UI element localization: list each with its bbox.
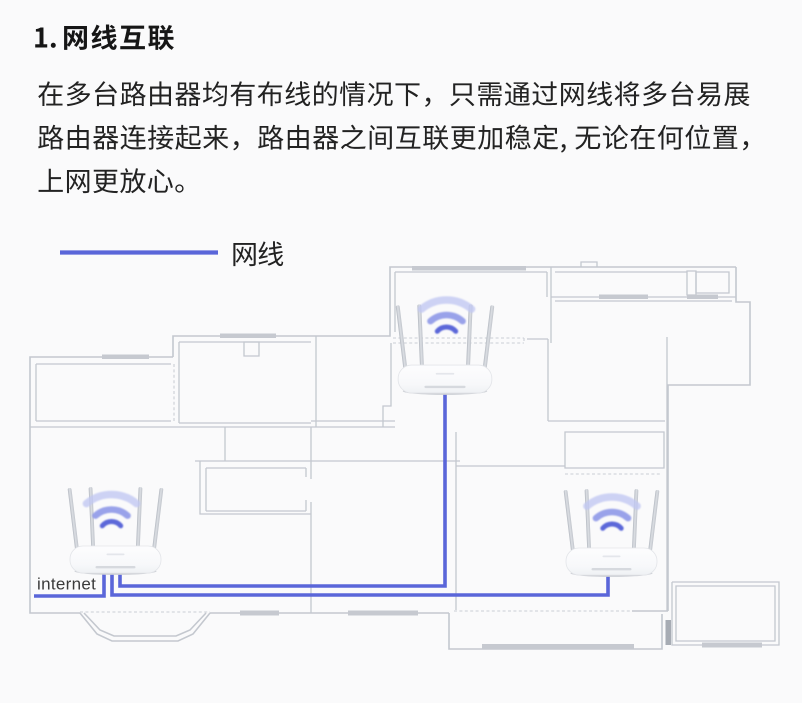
svg-text:internet: internet bbox=[37, 575, 96, 594]
